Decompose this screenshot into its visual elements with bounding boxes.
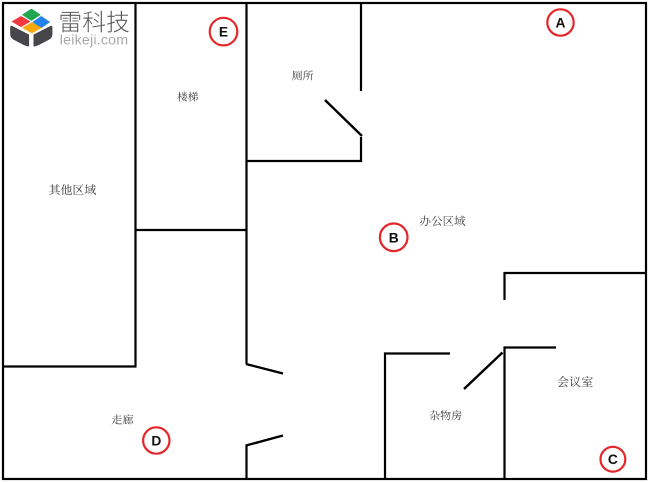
svg-text:leikeji.com: leikeji.com	[60, 33, 128, 49]
svg-text:A: A	[556, 16, 566, 31]
svg-text:E: E	[219, 25, 228, 40]
svg-text:C: C	[608, 452, 618, 467]
svg-text:D: D	[151, 434, 161, 449]
svg-text:B: B	[389, 230, 399, 245]
